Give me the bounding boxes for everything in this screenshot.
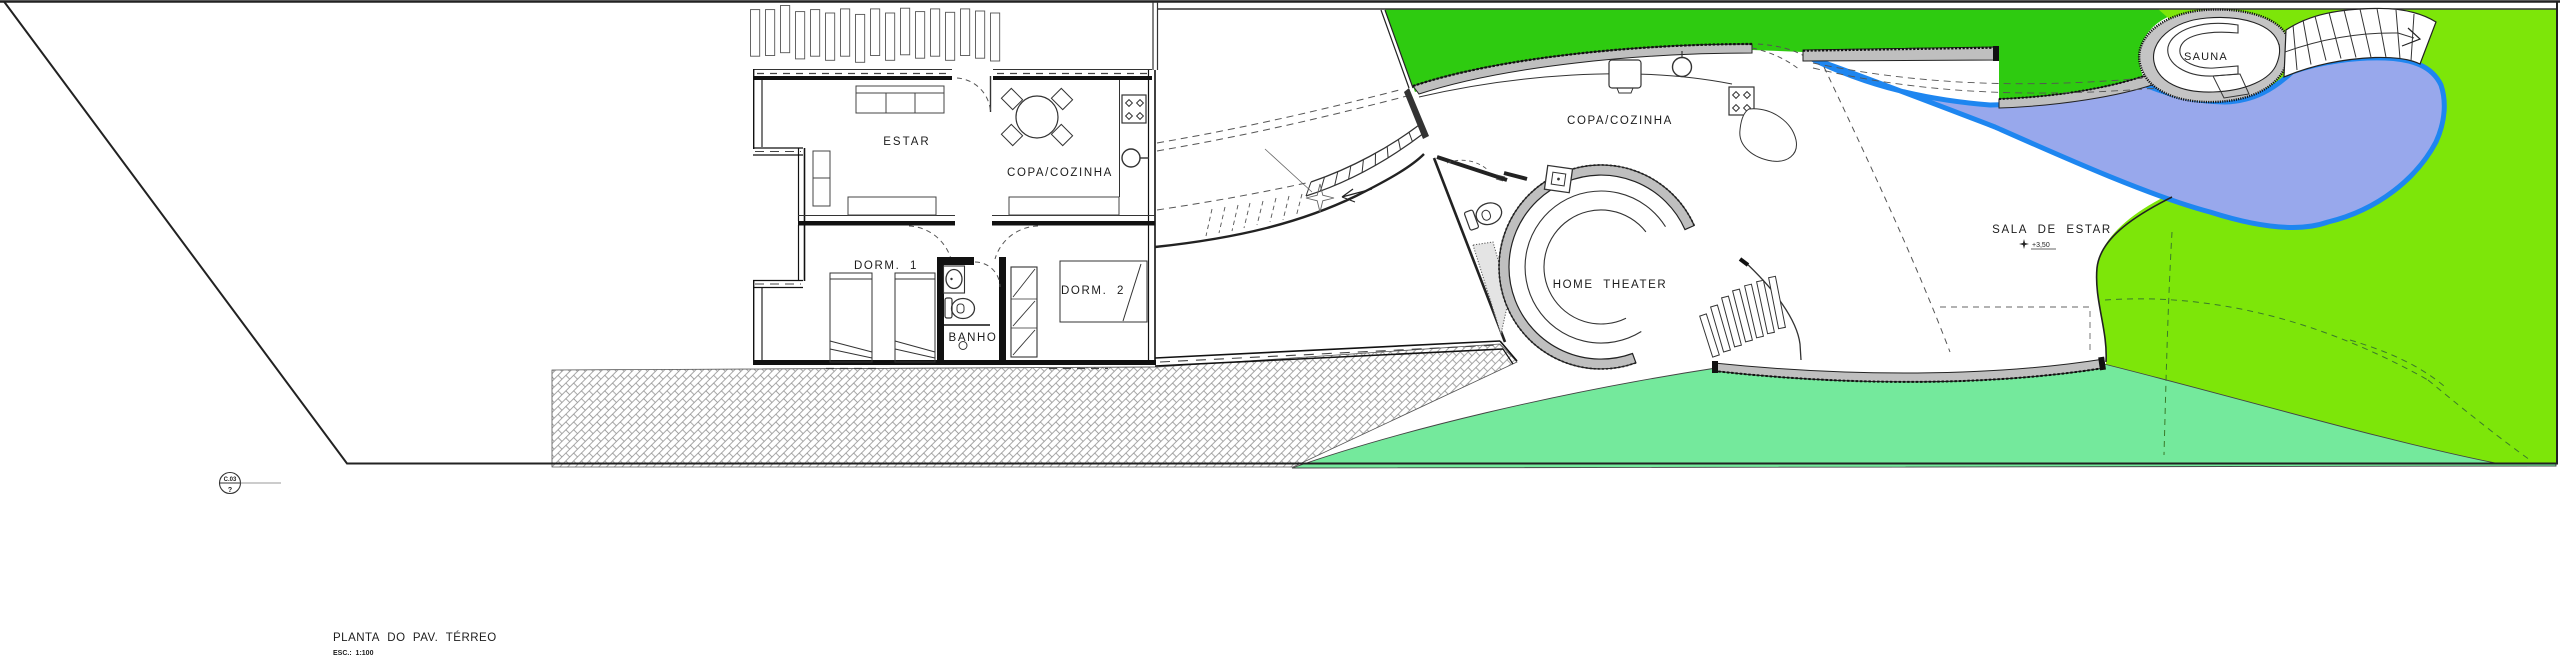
svg-text:PLANTA DO PAV. TÉRREO: PLANTA DO PAV. TÉRREO bbox=[333, 631, 497, 644]
svg-text:C.03: C.03 bbox=[224, 477, 237, 483]
svg-text:HOME THEATER: HOME THEATER bbox=[1553, 279, 1668, 291]
svg-text:DORM. 1: DORM. 1 bbox=[854, 260, 918, 272]
svg-text:?: ? bbox=[228, 487, 232, 494]
svg-text:+3,50: +3,50 bbox=[2032, 242, 2050, 249]
svg-text:COPA/COZINHA: COPA/COZINHA bbox=[1567, 115, 1673, 127]
svg-text:BANHO: BANHO bbox=[949, 332, 998, 344]
svg-text:ESC.: 1:100: ESC.: 1:100 bbox=[333, 650, 374, 657]
svg-text:ESTAR: ESTAR bbox=[883, 136, 931, 148]
svg-text:SALA DE ESTAR: SALA DE ESTAR bbox=[1992, 224, 2112, 236]
svg-text:SAUNA: SAUNA bbox=[2184, 51, 2228, 63]
svg-text:COPA/COZINHA: COPA/COZINHA bbox=[1007, 167, 1113, 179]
svg-text:DORM. 2: DORM. 2 bbox=[1061, 285, 1125, 297]
